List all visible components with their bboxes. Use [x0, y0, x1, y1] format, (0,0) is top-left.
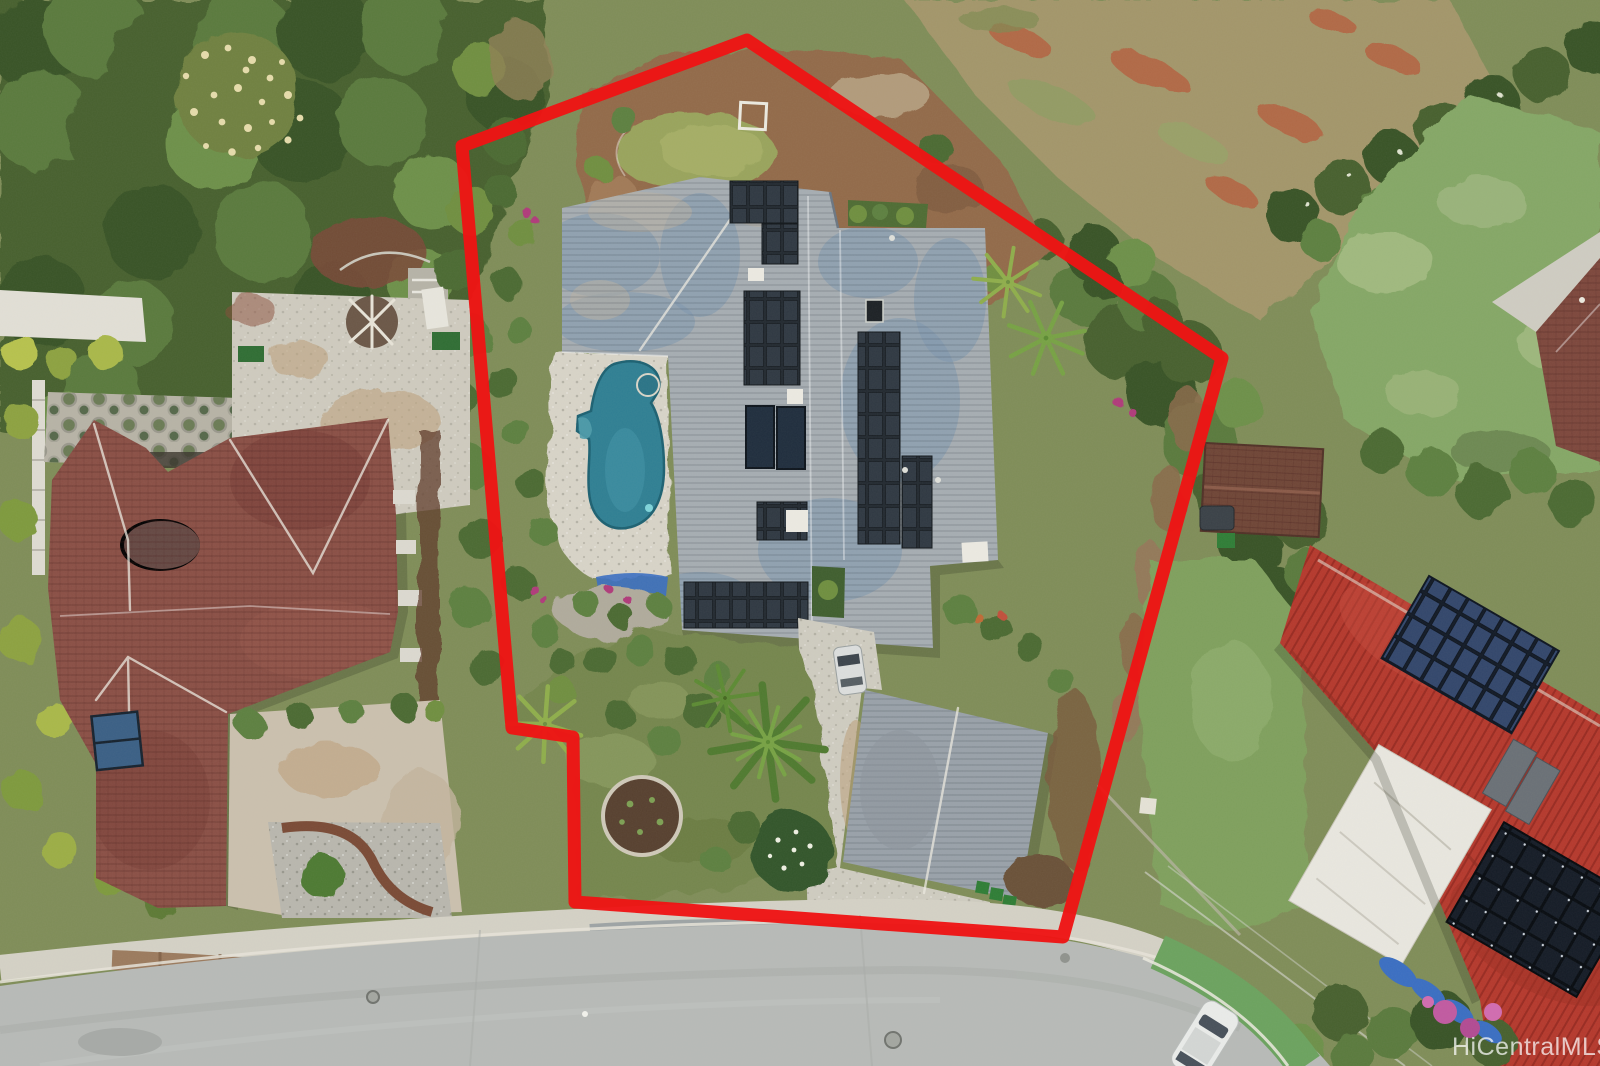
photo-grain [0, 0, 1600, 1066]
watermark: HiCentralMLS [1452, 1033, 1600, 1061]
aerial-photo-canvas: HiCentralMLS [0, 0, 1600, 1066]
aerial-photo: HiCentralMLS [0, 0, 1600, 1066]
